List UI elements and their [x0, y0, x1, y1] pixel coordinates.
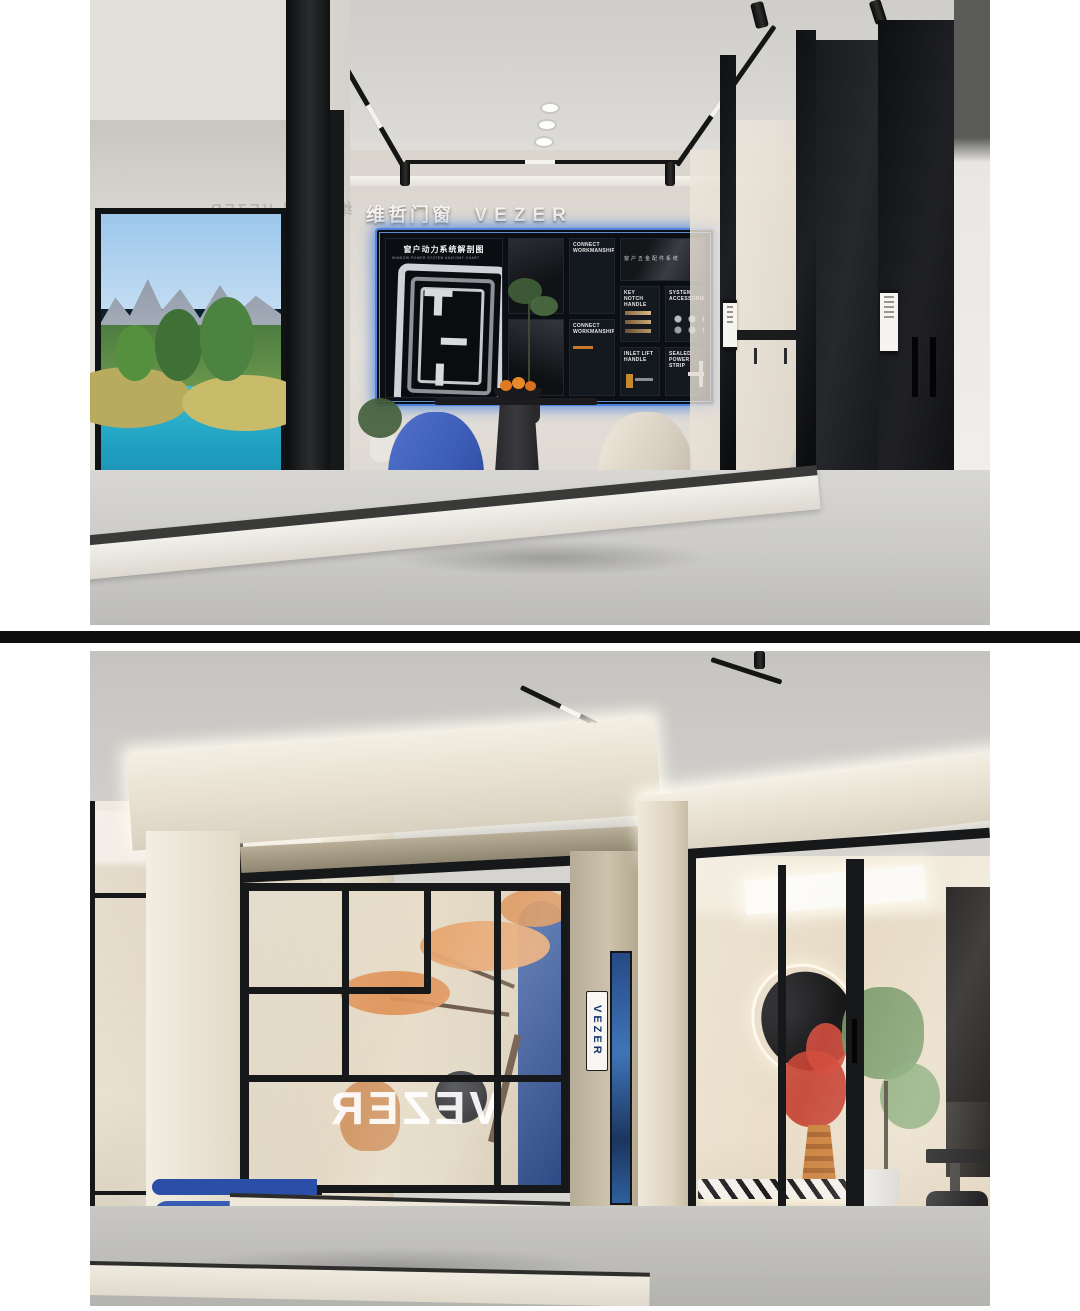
diagram-tbar [424, 289, 452, 297]
landscape-tree-cluster [155, 309, 202, 381]
door-b-handle-slot [930, 337, 936, 397]
wall-sign-cn: 维哲门窗 [366, 205, 454, 226]
cube-mullion [240, 1075, 570, 1082]
diagram-tbar [441, 338, 467, 346]
vertical-vezer-sign: VEZER [586, 991, 608, 1071]
tile-label: KEY NOTCH HANDLE [624, 290, 656, 308]
handle-image [625, 320, 651, 324]
board-title: 窗户动力系统解剖图 [389, 244, 499, 255]
tile-label: INLET LIFT HANDLE [624, 351, 656, 363]
board-connect-tile-2: CONNECT WORKMANSHIP [569, 319, 615, 396]
cube-mullion [240, 883, 570, 891]
cube-side-face [146, 831, 240, 1231]
spotlight-cylinder [400, 162, 410, 186]
tile-accent-line [573, 346, 593, 349]
photo-bottom-showroom: VEZER VEZER [90, 651, 990, 1306]
cube-glass [240, 883, 570, 1193]
track-light-rail-center [405, 160, 680, 164]
board-handle-tile: KEY NOTCH HANDLE [620, 286, 660, 342]
vertical-sign-text: VEZER [591, 1005, 603, 1057]
board-connect-tile: CONNECT WORKMANSHIP [569, 238, 615, 314]
fruit-bowl [494, 388, 542, 400]
tile-label: CONNECT WORKMANSHIP [573, 323, 611, 335]
door-a-handle [754, 348, 757, 364]
cube-mullion [424, 883, 431, 993]
cube-mullion [561, 883, 570, 1193]
orange-fruit [500, 380, 512, 391]
diagram-core-frame [417, 287, 484, 385]
photo-top-showroom: 维哲门窗 VEZER 维哲门窗 VEZER 窗户动力系统解剖图 [90, 0, 990, 625]
window-frame-diagram [394, 263, 503, 398]
divider-bar [0, 631, 1080, 643]
door-a-midrail [736, 330, 796, 340]
narrow-display-strip [610, 951, 632, 1205]
board-subtitle: WINDOW POWER SYSTEM ANATOMY CHART [389, 255, 483, 259]
board-photo-column [508, 238, 564, 396]
tile-label: CONNECT WORKMANSHIP [573, 242, 611, 254]
cube-mullion [342, 883, 349, 1079]
cube-mullion [240, 883, 249, 1193]
landscape-display-screen [95, 208, 287, 498]
recessed-light [542, 104, 558, 112]
product-display-board: 窗户动力系统解剖图 WINDOW POWER SYSTEM ANATOMY CH… [375, 228, 715, 406]
window-mullion-bar [330, 110, 344, 530]
recessed-light [539, 121, 555, 129]
door-b-handle-slot [912, 337, 918, 397]
lift-handle-image [635, 378, 653, 381]
landscape-tree-cluster [115, 325, 155, 381]
landscape-sky [101, 214, 281, 309]
landscape-tree-cluster [200, 297, 254, 380]
cube-mullion [494, 883, 501, 1193]
orange-fruit [525, 381, 536, 391]
handle-image [625, 311, 651, 315]
board-anatomy-panel: 窗户动力系统解剖图 WINDOW POWER SYSTEM ANATOMY CH… [385, 238, 503, 398]
orange-fruit [512, 377, 525, 389]
track-light-lit-segment [525, 160, 555, 164]
handle-image [625, 329, 651, 333]
board-mid-column: CONNECT WORKMANSHIP CONNECT WORKMANSHIP [569, 238, 615, 396]
wall-sign-en: VEZER [474, 205, 572, 226]
collage-canvas: 维哲门窗 VEZER 维哲门窗 VEZER 窗户动力系统解剖图 [0, 0, 1080, 1311]
furniture-shadow [390, 540, 710, 576]
partition-mullion [90, 801, 95, 1221]
plant-foliage [530, 296, 558, 316]
spec-card [723, 300, 737, 350]
board-lift-handle-tile: INLET LIFT HANDLE [620, 347, 660, 396]
diagram-tbar [435, 363, 444, 385]
right-cube-frame-pillar [638, 801, 688, 1276]
spec-card [880, 290, 898, 354]
recessed-light [536, 138, 552, 146]
spotlight-cylinder [665, 162, 675, 186]
door-a-handle [784, 348, 787, 364]
lift-handle-image [626, 374, 633, 388]
spotlight-cylinder [754, 651, 765, 669]
wall-signage: 维哲门窗 VEZER [366, 200, 573, 227]
door-handle-bar [852, 1019, 857, 1063]
cube-mullion [240, 987, 430, 994]
